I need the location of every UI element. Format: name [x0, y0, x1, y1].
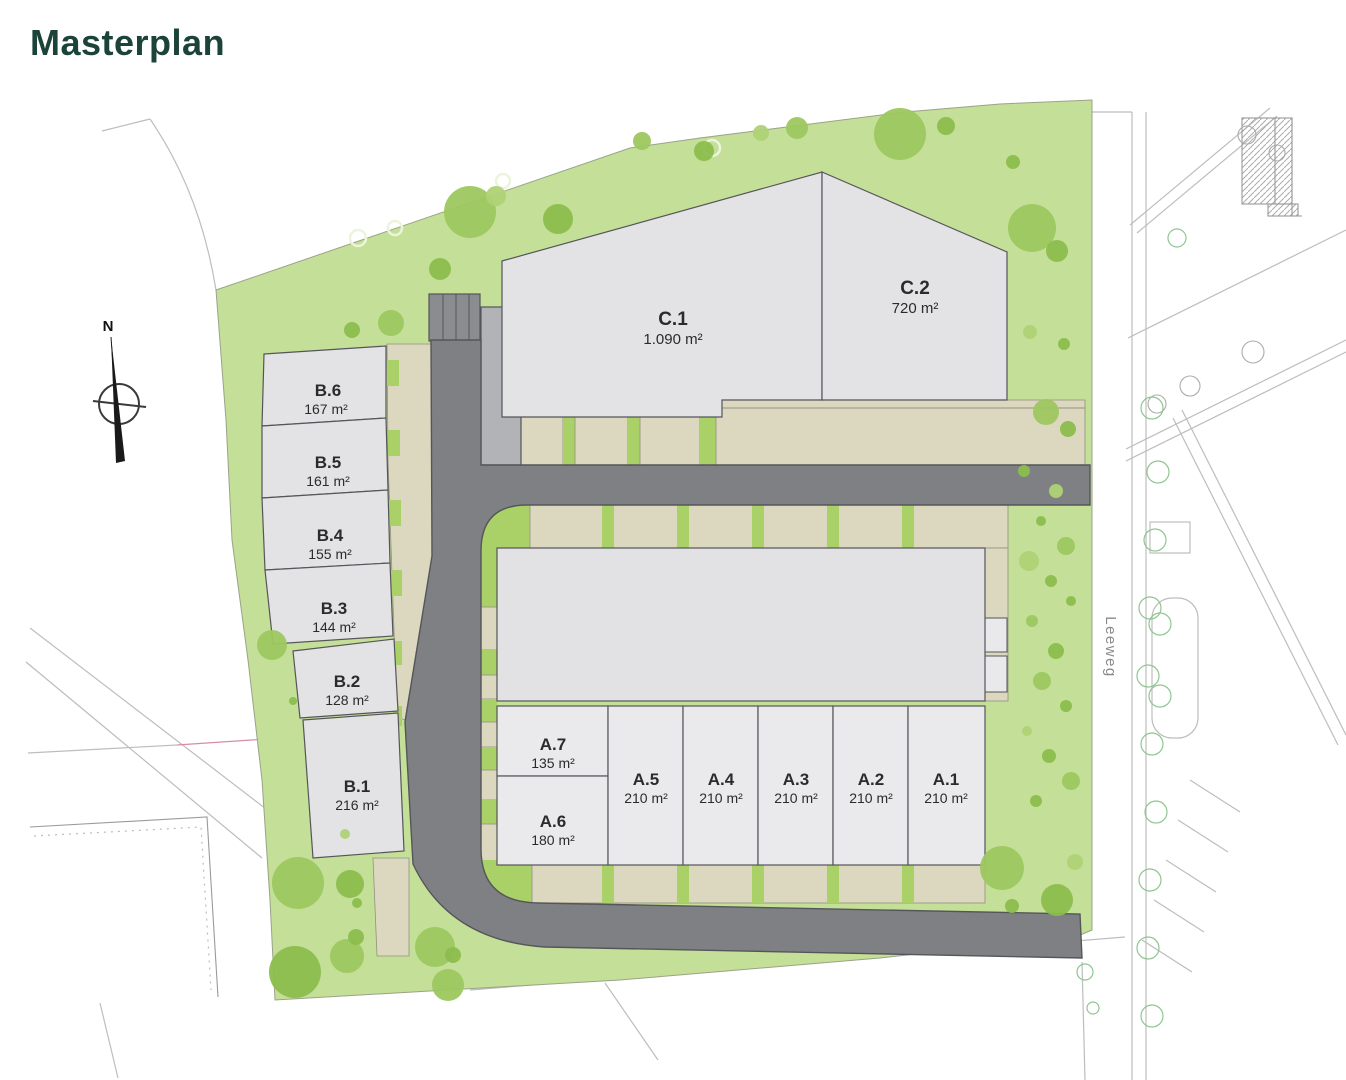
plot-a3[interactable]: A.3 210 m² — [758, 706, 833, 865]
plot-c1-id: C.1 — [658, 309, 688, 330]
plot-a6-area: 180 m² — [531, 832, 575, 848]
a-bottom-strip — [481, 860, 985, 903]
a-terrace-2 — [985, 656, 1007, 692]
plot-a7-area: 135 m² — [531, 755, 575, 771]
plot-c2-id: C.2 — [900, 278, 930, 299]
plot-b1-area: 216 m² — [335, 797, 379, 813]
plot-c2-area: 720 m² — [892, 300, 939, 317]
plot-a5-area: 210 m² — [624, 790, 668, 806]
plot-b5-area: 161 m² — [306, 473, 350, 489]
plot-b1-id: B.1 — [344, 777, 370, 796]
plot-b6[interactable]: B.6 167 m² — [262, 346, 386, 426]
plot-a5-id: A.5 — [633, 770, 659, 789]
street-label-leeweg: Leeweg — [1102, 616, 1119, 678]
plot-a7-id: A.7 — [540, 735, 566, 754]
plot-b5-id: B.5 — [315, 453, 341, 472]
compass-rose: N — [93, 318, 146, 463]
parking-top — [429, 294, 480, 341]
plot-b3-id: B.3 — [321, 599, 347, 618]
plot-a4-id: A.4 — [708, 770, 735, 789]
plot-b4-id: B.4 — [317, 526, 344, 545]
a-building-block — [497, 548, 985, 701]
plot-a3-id: A.3 — [783, 770, 809, 789]
plot-b6-area: 167 m² — [304, 401, 348, 417]
context-parking-loop — [1152, 598, 1198, 738]
plot-a6[interactable]: A.6 180 m² — [497, 776, 608, 865]
plot-a2-id: A.2 — [858, 770, 884, 789]
plot-a7[interactable]: A.7 135 m² — [497, 706, 608, 776]
site-plan: C.1 1.090 m² C.2 720 m² A.7 135 m² A.6 1… — [0, 0, 1346, 1080]
compass-needle — [111, 337, 125, 463]
a-left-band — [481, 607, 497, 862]
plot-a6-id: A.6 — [540, 812, 566, 831]
plot-b2-id: B.2 — [334, 672, 360, 691]
b1-footpath — [373, 858, 409, 956]
existing-building-hatched — [1242, 118, 1302, 216]
plot-b5[interactable]: B.5 161 m² — [262, 418, 388, 498]
plot-a2-area: 210 m² — [849, 790, 893, 806]
plot-b3-area: 144 m² — [312, 619, 356, 635]
plot-b2-area: 128 m² — [325, 692, 369, 708]
plot-a1-id: A.1 — [933, 770, 959, 789]
plot-b4[interactable]: B.4 155 m² — [262, 490, 390, 570]
plot-a1-area: 210 m² — [924, 790, 968, 806]
plot-c1-area: 1.090 m² — [643, 331, 702, 348]
plot-a5[interactable]: A.5 210 m² — [608, 706, 683, 865]
compass-north-label: N — [103, 318, 114, 335]
plot-a1[interactable]: A.1 210 m² — [908, 706, 985, 865]
plot-a4-area: 210 m² — [699, 790, 743, 806]
plot-b2[interactable]: B.2 128 m² — [293, 639, 398, 718]
plot-a2[interactable]: A.2 210 m² — [833, 706, 908, 865]
plot-b4-area: 155 m² — [308, 546, 352, 562]
boundary-marker-line — [177, 739, 266, 745]
context-parking-island — [1150, 522, 1190, 553]
plot-a3-area: 210 m² — [774, 790, 818, 806]
plot-b3[interactable]: B.3 144 m² — [265, 563, 393, 644]
a-terrace-1 — [985, 618, 1007, 652]
plot-b6-id: B.6 — [315, 381, 341, 400]
plot-b1[interactable]: B.1 216 m² — [303, 713, 404, 858]
plot-a4[interactable]: A.4 210 m² — [683, 706, 758, 865]
masterplan-canvas: Masterplan — [0, 0, 1346, 1080]
